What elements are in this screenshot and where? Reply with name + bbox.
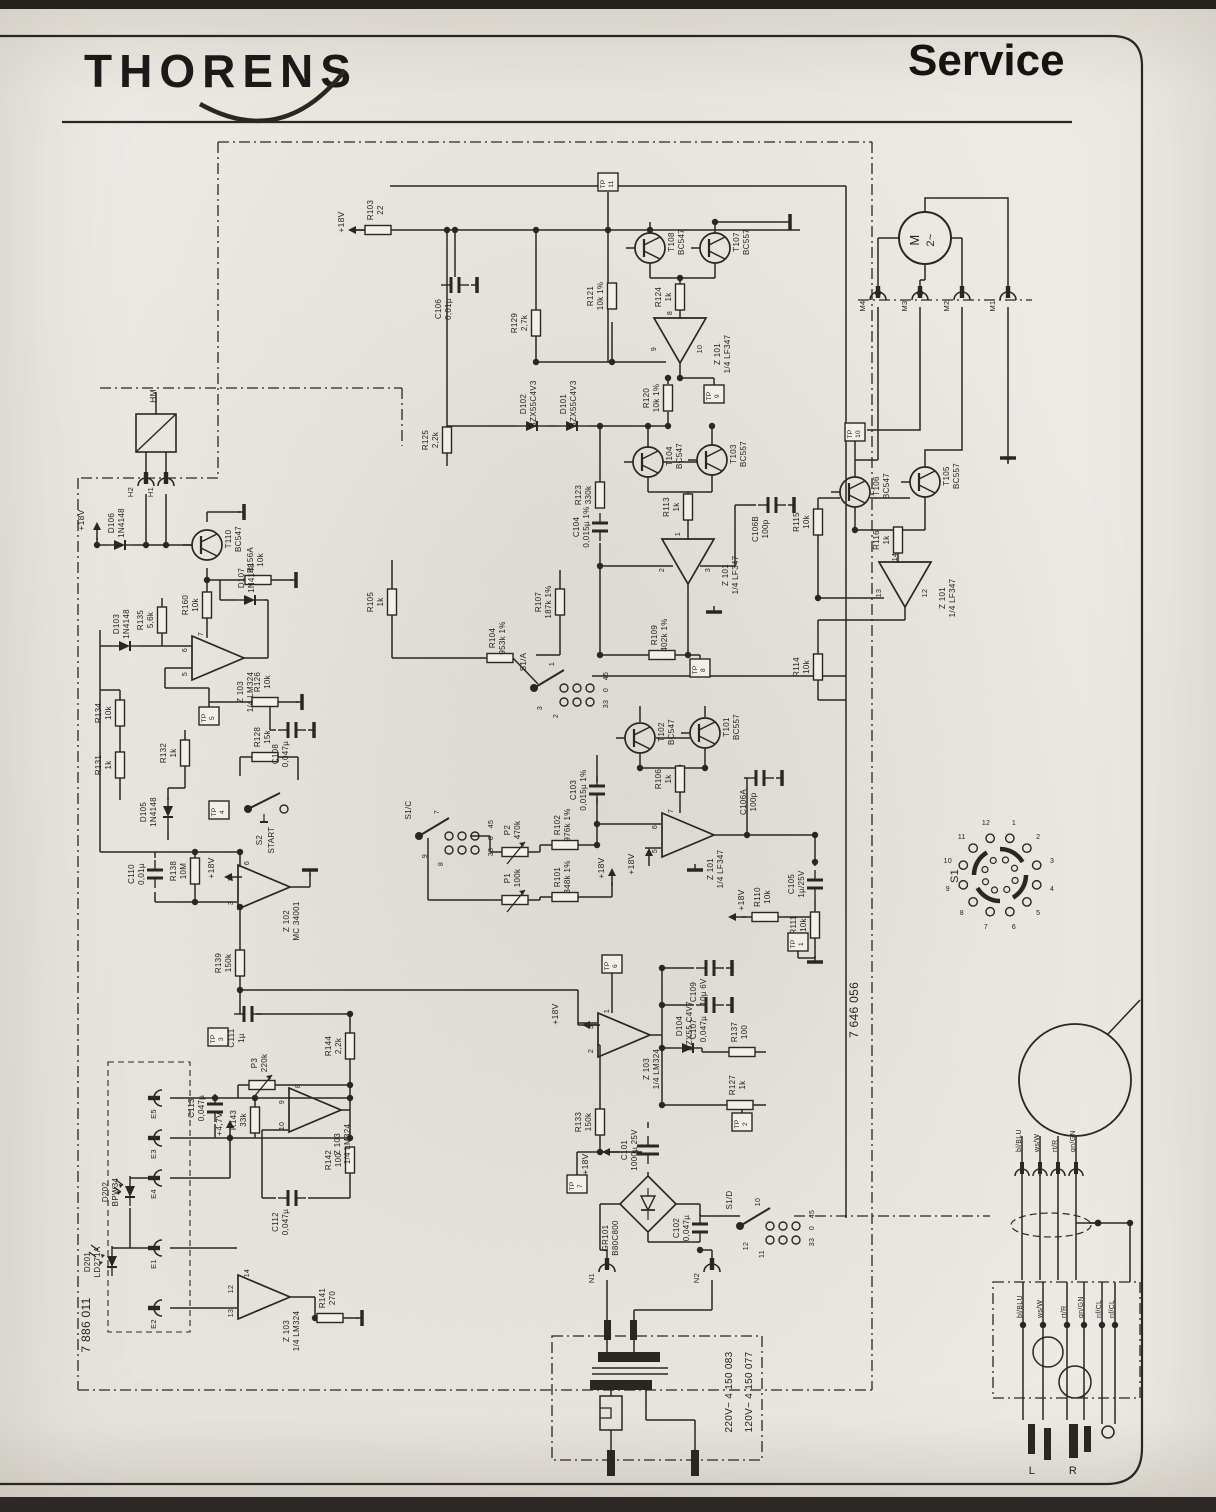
svg-text:120V~ 4 150 077: 120V~ 4 150 077	[744, 1351, 755, 1432]
resistor-R135: R1355,6k	[136, 607, 167, 633]
transistor-T106: T106BC547	[831, 473, 891, 507]
svg-text:+18V: +18V	[550, 1003, 560, 1024]
svg-text:P2: P2	[503, 825, 512, 836]
svg-text:5: 5	[1036, 910, 1040, 917]
switch-S1-D: 10111245033S1/D	[725, 1191, 816, 1258]
svg-text:+18V: +18V	[596, 857, 606, 878]
svg-text:2: 2	[1036, 834, 1040, 841]
svg-text:Z 103: Z 103	[333, 1133, 342, 1155]
svg-text:0: 0	[8, 0, 13, 2]
svg-text:C101: C101	[620, 1140, 629, 1161]
capacitor-C106B: C106B100p	[751, 497, 794, 542]
svg-text:+4,7V: +4,7V	[214, 1112, 224, 1136]
svg-text:T108: T108	[667, 232, 676, 252]
connector-E3: E3	[148, 1130, 162, 1159]
svg-text:0,047µ: 0,047µ	[197, 1095, 206, 1122]
svg-text:0,047µ: 0,047µ	[281, 1209, 290, 1236]
scanned-service-page: THORENS Service 07 886 0117 646 056R1032…	[0, 0, 1216, 1512]
svg-text:R102: R102	[553, 815, 562, 836]
svg-text:TP: TP	[569, 1182, 576, 1191]
connector-M1: M1	[988, 286, 1016, 312]
potentiometer-P3: P3220k	[249, 1053, 275, 1097]
svg-text:E2: E2	[149, 1319, 158, 1329]
svg-text:11: 11	[958, 834, 966, 841]
svg-text:HM: HM	[148, 389, 158, 403]
resistor-R121: R12110k 1%	[586, 282, 617, 310]
svg-text:TP: TP	[600, 180, 607, 189]
svg-text:E1: E1	[149, 1259, 158, 1269]
svg-text:7: 7	[434, 810, 441, 814]
resistor-R125: R1252,2k	[421, 427, 452, 453]
connector-N2: N2	[692, 1258, 720, 1283]
mains-transformer: 220V~ 4 150 083120V~ 4 150 077	[590, 1320, 755, 1476]
svg-text:0: 0	[488, 836, 495, 840]
svg-text:10k: 10k	[104, 705, 113, 719]
resistor-R103: R10322	[365, 200, 391, 235]
resistor-R110: R11010k	[752, 887, 778, 922]
svg-text:R131: R131	[94, 755, 103, 776]
svg-text:12: 12	[228, 1285, 235, 1293]
svg-text:S1/C: S1/C	[404, 801, 413, 820]
svg-text:nf/CL: nf/CL	[1096, 1300, 1103, 1318]
svg-text:10M: 10M	[179, 863, 188, 879]
svg-text:2: 2	[659, 568, 666, 572]
svg-text:TP: TP	[211, 808, 218, 817]
svg-text:TP: TP	[692, 666, 699, 675]
svg-text:Z 101: Z 101	[721, 564, 730, 586]
svg-text:BC547: BC547	[234, 526, 243, 552]
svg-text:BZX55C4V3: BZX55C4V3	[569, 380, 578, 427]
svg-text:D105: D105	[139, 802, 148, 823]
svg-text:+18V: +18V	[76, 509, 86, 530]
svg-text:E5: E5	[149, 1109, 158, 1119]
connector-N1: N1	[587, 1258, 615, 1283]
testpoint-TP2: TP2	[732, 1113, 752, 1131]
transistor-T102: T102BC547	[616, 719, 676, 753]
bridge-GR101: GR101B80C800	[601, 1176, 676, 1256]
capacitor-C106: C1060,01µ	[434, 277, 477, 320]
svg-text:E4: E4	[149, 1189, 158, 1199]
svg-text:TP: TP	[734, 1120, 741, 1129]
svg-text:R132: R132	[159, 743, 168, 764]
svg-text:1/4 LF347: 1/4 LF347	[716, 849, 725, 888]
svg-text:1/4 LF347: 1/4 LF347	[731, 555, 740, 594]
svg-text:R110: R110	[753, 887, 762, 907]
svg-text:R128: R128	[253, 727, 262, 748]
svg-text:13: 13	[876, 589, 883, 597]
svg-text:R133: R133	[574, 1112, 583, 1133]
svg-text:R105: R105	[366, 592, 375, 613]
svg-text:45: 45	[488, 820, 495, 828]
diode-D102: D102BZX55C4V3	[518, 380, 546, 431]
wires	[97, 186, 1140, 1450]
capacitor-C108: C1080,047µ	[271, 722, 314, 767]
svg-text:8: 8	[667, 311, 674, 315]
transistor-T104: T104BC547	[624, 443, 684, 477]
svg-text:P3: P3	[250, 1058, 259, 1069]
svg-text:2,2k: 2,2k	[334, 1037, 343, 1054]
capacitor-C112: C1120,047µ	[271, 1190, 306, 1235]
opamp-Z101-0: 8910Z 1011/4 LF347	[651, 311, 732, 373]
resistor-R127: R1271k	[727, 1075, 753, 1110]
svg-text:N2: N2	[692, 1273, 701, 1283]
svg-text:R138: R138	[169, 861, 178, 882]
svg-text:470k: 470k	[513, 820, 522, 839]
svg-text:45: 45	[603, 672, 610, 680]
svg-text:1k: 1k	[664, 292, 673, 302]
svg-text:B80C800: B80C800	[611, 1220, 620, 1256]
svg-text:10k 1%: 10k 1%	[652, 384, 661, 412]
svg-text:0,01µ: 0,01µ	[444, 298, 453, 320]
svg-text:C110: C110	[127, 864, 136, 884]
transistor-T110: T110BC547	[183, 526, 243, 560]
svg-text:3: 3	[1050, 858, 1054, 865]
diode-D201: D201LD271A	[83, 1245, 117, 1277]
svg-text:1/4 LM324: 1/4 LM324	[652, 1049, 661, 1090]
svg-text:0: 0	[603, 688, 610, 692]
svg-text:14: 14	[244, 1269, 251, 1277]
svg-text:10k 1%: 10k 1%	[596, 282, 605, 310]
svg-text:8: 8	[700, 668, 707, 672]
svg-text:220V~ 4 150 083: 220V~ 4 150 083	[724, 1351, 735, 1432]
svg-text:C108: C108	[271, 744, 280, 765]
svg-text:2,2k: 2,2k	[431, 431, 440, 448]
svg-text:GR101: GR101	[601, 1224, 610, 1251]
svg-text:5: 5	[182, 672, 189, 676]
svg-text:2: 2	[553, 714, 560, 718]
svg-text:1/4 LF347: 1/4 LF347	[723, 334, 732, 373]
svg-text:33: 33	[603, 700, 610, 708]
resistor-R141: R141270	[317, 1288, 343, 1323]
junction-dots	[94, 219, 1133, 1321]
svg-text:R106: R106	[654, 769, 663, 790]
svg-text:9: 9	[422, 854, 429, 858]
svg-text:Z 101: Z 101	[713, 343, 722, 365]
page-frame	[0, 36, 1142, 1484]
resistor-R104: R104953k 1%	[487, 621, 513, 662]
testpoint-TP11: TP11	[598, 173, 618, 191]
svg-text:R115: R115	[792, 512, 801, 532]
resistor-R105: R1051k	[366, 589, 397, 615]
svg-text:100p: 100p	[761, 519, 770, 538]
svg-text:TP: TP	[790, 940, 797, 949]
capacitor-C106A: C106A100p	[739, 770, 782, 815]
svg-text:M: M	[907, 234, 922, 245]
svg-text:L: L	[1029, 1465, 1035, 1477]
svg-text:C106B: C106B	[751, 516, 760, 542]
svg-text:22: 22	[376, 205, 385, 215]
resistor-R144: R1442,2k	[324, 1033, 355, 1059]
svg-text:R139: R139	[214, 953, 223, 974]
capacitor-C109: C10910µ 6V	[689, 960, 732, 1006]
svg-text:1N4148: 1N4148	[247, 563, 256, 593]
svg-text:11: 11	[759, 1250, 766, 1258]
svg-text:C113: C113	[187, 1098, 196, 1118]
switch-S2: S2START	[244, 793, 288, 853]
connector-E5: E5	[148, 1090, 162, 1119]
svg-text:M3: M3	[900, 300, 909, 311]
svg-text:1k: 1k	[738, 1080, 747, 1090]
svg-text:0,015µ 1%: 0,015µ 1%	[582, 506, 591, 547]
svg-text:LD271A: LD271A	[93, 1246, 102, 1277]
svg-text:150k: 150k	[224, 953, 233, 972]
svg-text:R101: R101	[553, 867, 562, 888]
motor-M: M2~	[899, 212, 951, 264]
testpoint-TP6: TP6	[602, 955, 622, 973]
svg-text:187k 1%: 187k 1%	[544, 585, 553, 618]
svg-text:12: 12	[922, 589, 929, 597]
svg-text:7: 7	[198, 632, 205, 636]
resistor-R133: R133150k	[574, 1109, 605, 1135]
svg-text:C109: C109	[689, 982, 698, 1003]
svg-text:P1: P1	[503, 873, 512, 884]
svg-text:7: 7	[668, 809, 675, 813]
testpoint-TP8: TP8	[690, 659, 710, 677]
potentiometer-P1: P1100k	[502, 868, 528, 912]
svg-text:7 646 056: 7 646 056	[847, 982, 861, 1038]
svg-text:Z 103: Z 103	[642, 1058, 651, 1080]
svg-text:0,047µ: 0,047µ	[682, 1215, 691, 1242]
svg-text:R125: R125	[421, 430, 430, 451]
opamp-Z101-3: 765Z 1011/4 LF347	[652, 809, 725, 888]
capacitor-C103: C1030,015µ 1%	[569, 769, 605, 810]
svg-text:H1: H1	[146, 487, 155, 497]
resistor-R109: R109402k 1%	[649, 618, 675, 659]
svg-text:R114: R114	[792, 657, 801, 677]
svg-text:8: 8	[960, 910, 964, 917]
svg-text:1k: 1k	[376, 597, 385, 607]
svg-text:R141: R141	[318, 1288, 327, 1309]
svg-text:6: 6	[182, 648, 189, 652]
svg-text:Z 103: Z 103	[236, 681, 245, 703]
svg-text:0: 0	[809, 1226, 816, 1230]
svg-text:N1: N1	[587, 1273, 596, 1283]
svg-text:1/4 LF347: 1/4 LF347	[948, 578, 957, 617]
board-id-left-t: 7 886 011	[79, 1297, 93, 1352]
transistor-T103: T103BC557	[688, 441, 748, 475]
svg-text:T110: T110	[224, 529, 233, 548]
svg-text:R113: R113	[662, 497, 671, 517]
logo-swoosh	[200, 70, 345, 121]
svg-text:3: 3	[218, 1037, 225, 1041]
transistor-T101: T101BC557	[681, 714, 741, 748]
resistor-R132: R1321k	[159, 740, 190, 766]
svg-text:1k: 1k	[672, 502, 681, 512]
svg-text:R160: R160	[181, 595, 190, 616]
svg-text:R144: R144	[324, 1036, 333, 1057]
svg-text:10k: 10k	[799, 917, 808, 931]
svg-text:1N4148: 1N4148	[122, 609, 131, 639]
svg-text:1: 1	[798, 942, 805, 946]
svg-text:bl/BLU: bl/BLU	[1017, 1295, 1024, 1318]
svg-text:9: 9	[651, 347, 658, 351]
svg-text:1N4148: 1N4148	[117, 508, 126, 538]
svg-text:TP: TP	[210, 1035, 217, 1044]
svg-text:S1: S1	[949, 869, 961, 883]
svg-text:3: 3	[705, 568, 712, 572]
testpoint-TP5: TP5	[199, 707, 219, 725]
diode-D105: D1051N4148	[139, 797, 173, 827]
svg-text:5,6k: 5,6k	[146, 611, 155, 628]
svg-text:D106: D106	[107, 513, 116, 534]
connector-E1: E1	[148, 1240, 162, 1269]
svg-text:S1/A: S1/A	[519, 652, 528, 671]
svg-text:8: 8	[295, 1084, 302, 1088]
svg-text:953k 1%: 953k 1%	[498, 621, 507, 654]
svg-text:C106A: C106A	[739, 789, 748, 815]
cartridge-wiring: bl/BLUws/Wrt/Rgn/GNbl/BLUws/Wrt/Rgn/GNnf…	[1011, 1024, 1131, 1477]
svg-text:1: 1	[675, 532, 682, 536]
svg-text:TP: TP	[604, 962, 611, 971]
svg-text:+18V: +18V	[626, 853, 636, 874]
svg-text:8: 8	[438, 862, 445, 866]
svg-text:D101: D101	[559, 394, 568, 415]
svg-text:R127: R127	[728, 1075, 737, 1096]
svg-text:C102: C102	[672, 1218, 681, 1239]
svg-text:BPW34: BPW34	[111, 1177, 120, 1206]
opamp-Z101-1: 123Z 1011/4 LF347	[659, 532, 740, 594]
opamp-Z103-6: 132Z 1031/4 LM324	[588, 1009, 661, 1089]
svg-text:33: 33	[809, 1238, 816, 1246]
svg-text:45: 45	[809, 1210, 816, 1218]
svg-text:D202: D202	[101, 1182, 110, 1203]
svg-text:3: 3	[537, 706, 544, 710]
svg-text:BZX55 C4V7: BZX55 C4V7	[685, 1001, 694, 1051]
diode-D101: D101BZX55C4V3	[558, 380, 586, 431]
connector-M2: M2	[942, 286, 970, 312]
svg-text:C103: C103	[569, 780, 578, 801]
diode-D106: D1061N4148	[106, 508, 134, 550]
svg-text:1/4 LM324: 1/4 LM324	[292, 1311, 301, 1352]
capacitor-C110: C1100,01µ	[127, 860, 163, 888]
svg-text:5: 5	[652, 849, 659, 853]
svg-text:3: 3	[228, 901, 235, 905]
svg-text:Z 101: Z 101	[938, 587, 947, 609]
svg-text:9: 9	[714, 394, 721, 398]
svg-text:1N4148: 1N4148	[149, 797, 158, 827]
svg-text:TP: TP	[201, 714, 208, 723]
svg-text:3: 3	[588, 1025, 595, 1029]
svg-text:rt/R: rt/R	[1061, 1306, 1068, 1318]
board-id-left: 0	[8, 0, 13, 2]
svg-text:1µ/25V: 1µ/25V	[797, 870, 806, 898]
svg-text:ws/W: ws/W	[1037, 1300, 1044, 1319]
svg-text:T105: T105	[942, 466, 951, 486]
transistor-T108: T108BC547	[626, 229, 686, 263]
svg-text:6: 6	[1012, 924, 1016, 931]
capacitor-C104: C1040,015µ 1%	[572, 506, 608, 547]
svg-text:D104: D104	[675, 1016, 684, 1037]
svg-text:0,047µ: 0,047µ	[699, 1016, 708, 1043]
capacitor-C105: C1051µ/25V	[787, 870, 823, 898]
svg-text:T104: T104	[665, 446, 674, 466]
svg-text:1/4 LM324: 1/4 LM324	[246, 672, 255, 713]
svg-text:gn/GN: gn/GN	[1078, 1296, 1085, 1318]
svg-text:220k: 220k	[260, 1053, 269, 1072]
supply-arrows	[93, 226, 746, 1156]
svg-text:R137: R137	[730, 1022, 739, 1043]
capacitor-C101: C1011000µ 25V	[620, 1129, 659, 1171]
svg-text:R129: R129	[510, 313, 519, 334]
testpoint-TP9: TP9	[704, 385, 724, 403]
svg-text:1k: 1k	[104, 760, 113, 770]
svg-text:M4: M4	[858, 300, 867, 311]
svg-text:0,015µ 1%: 0,015µ 1%	[579, 769, 588, 810]
svg-text:2~: 2~	[925, 233, 937, 246]
svg-text:T101: T101	[722, 717, 731, 737]
svg-text:START: START	[267, 827, 276, 854]
opamp-Z102-5: 623Z 102MC 34001	[228, 861, 301, 941]
transistor-T107: T107BC557	[691, 229, 751, 263]
svg-text:M1: M1	[988, 300, 997, 311]
connector-E2: E2	[148, 1300, 162, 1329]
resistor-R139: R139150k	[214, 950, 245, 976]
resistor-R138: R13810M	[169, 858, 200, 884]
svg-text:R109: R109	[650, 625, 659, 646]
svg-text:13: 13	[228, 1309, 235, 1317]
opamp-Z103-7: 8910Z 1031/4 LM324	[279, 1084, 352, 1164]
svg-text:R107: R107	[534, 592, 543, 613]
svg-text:rt/R: rt/R	[1052, 1140, 1059, 1152]
svg-text:R143: R143	[229, 1110, 238, 1131]
svg-text:ws/W: ws/W	[1034, 1134, 1041, 1153]
svg-text:BC557: BC557	[742, 229, 751, 255]
svg-text:BC547: BC547	[667, 719, 676, 745]
svg-text:100: 100	[740, 1025, 749, 1039]
svg-text:150k: 150k	[584, 1112, 593, 1131]
resistor-R102: R102976k 1%	[552, 808, 578, 849]
svg-text:M2: M2	[942, 300, 951, 311]
svg-text:0,047µ: 0,047µ	[281, 741, 290, 768]
svg-text:2,7k: 2,7k	[520, 314, 529, 331]
svg-text:S1/D: S1/D	[725, 1191, 734, 1210]
svg-text:nf/CL: nf/CL	[1109, 1300, 1116, 1318]
svg-text:H2: H2	[126, 487, 135, 497]
svg-text:10: 10	[855, 430, 862, 438]
svg-text:BC557: BC557	[739, 441, 748, 467]
schematic-canvas: 07 886 0117 646 056R10322R12110k 1%R1241…	[0, 0, 1216, 1512]
svg-text:10k: 10k	[802, 659, 811, 673]
svg-text:Z 102: Z 102	[282, 910, 291, 932]
svg-text:2: 2	[588, 1049, 595, 1053]
svg-text:T106: T106	[872, 476, 881, 496]
svg-text:11: 11	[608, 180, 615, 187]
svg-text:10: 10	[755, 1198, 762, 1206]
svg-text:R123: R123	[574, 485, 583, 506]
svg-text:15k: 15k	[263, 729, 272, 743]
switch-S1-C: 78945033S1/C	[404, 801, 495, 867]
diode-D202: D202BPW34	[101, 1177, 135, 1206]
opamp-Z101-2: 141312Z 1011/4 LF347	[876, 553, 957, 618]
svg-text:976k 1%: 976k 1%	[563, 808, 572, 841]
svg-text:100k: 100k	[513, 868, 522, 887]
svg-text:6: 6	[612, 964, 619, 968]
svg-text:10k: 10k	[256, 552, 265, 566]
svg-text:10: 10	[944, 858, 952, 865]
resistor-R129: R1292,7k	[510, 310, 541, 336]
svg-text:1000µ 25V: 1000µ 25V	[630, 1129, 639, 1171]
svg-text:4: 4	[1050, 886, 1054, 893]
resistor-R107: R107187k 1%	[534, 585, 565, 618]
svg-text:9: 9	[279, 1100, 286, 1104]
svg-text:R104: R104	[488, 628, 497, 649]
svg-text:12: 12	[982, 820, 990, 827]
svg-text:TP: TP	[706, 392, 713, 401]
resistor-R120: R12010k 1%	[642, 384, 673, 412]
resistor-R123: R123330k	[574, 482, 605, 508]
testpoint-TP10: TP10	[845, 423, 865, 441]
svg-text:2: 2	[228, 877, 235, 881]
